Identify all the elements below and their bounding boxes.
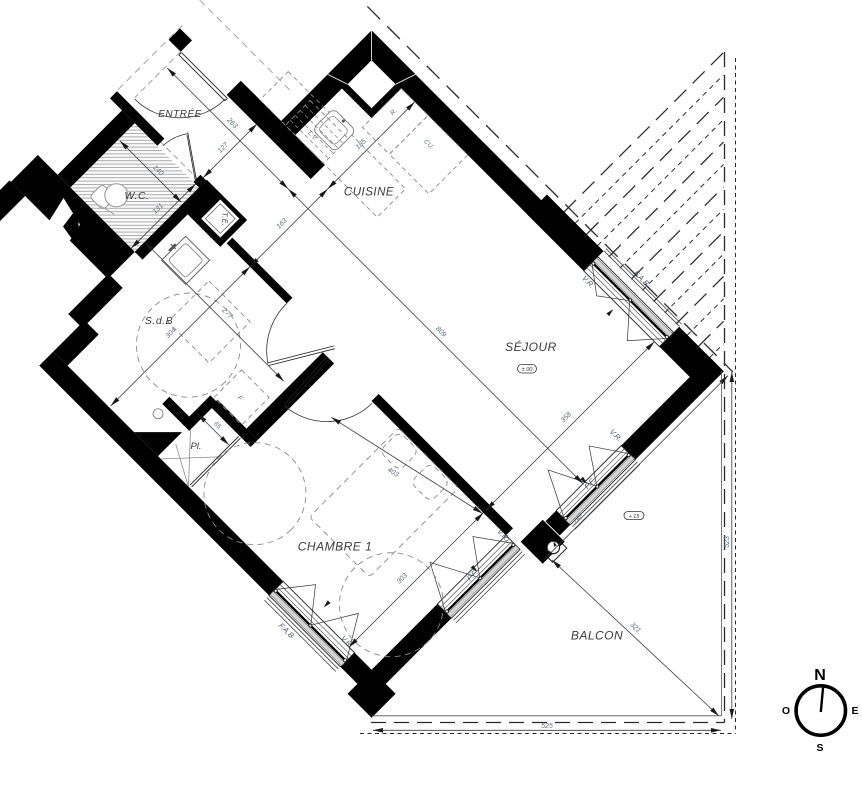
svg-text:W.C.: W.C. [125,190,150,202]
svg-text:523: 523 [724,536,731,548]
svg-text:Pl.: Pl. [190,441,201,452]
svg-text:CHAMBRE 1: CHAMBRE 1 [298,540,373,554]
svg-text:O: O [782,705,790,717]
svg-text:T.E.: T.E. [220,212,227,226]
svg-text:S.d.B: S.d.B [145,315,173,327]
svg-text:E: E [851,705,858,717]
svg-text:+ 15: + 15 [629,514,641,520]
svg-text:525: 525 [541,723,553,730]
svg-text:N: N [814,667,826,684]
svg-text:CUISINE: CUISINE [344,187,394,199]
svg-text:ENTRÉE: ENTRÉE [158,107,202,120]
svg-text:S: S [816,742,823,754]
svg-text:SÉJOUR: SÉJOUR [505,339,557,354]
svg-text:BALCON: BALCON [571,629,623,643]
svg-text:± 00: ± 00 [522,367,534,373]
